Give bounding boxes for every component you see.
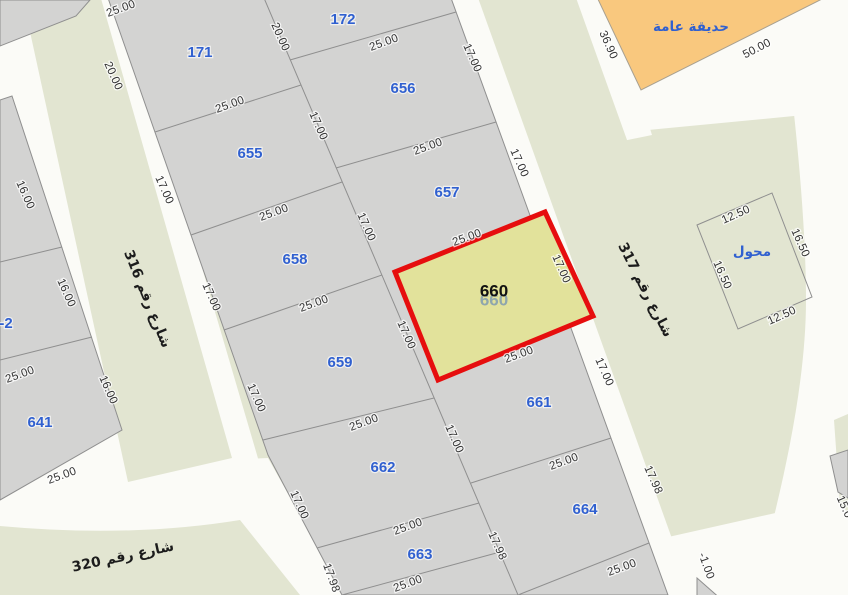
map-canvas[interactable]: 25.0020.0025.0017.0036.9050.0020.0025.00… xyxy=(0,0,848,595)
parcel-number: 664 xyxy=(572,501,598,518)
map-viewport: 25.0020.0025.0017.0036.9050.0020.0025.00… xyxy=(0,0,848,595)
parcel-number: 655 xyxy=(237,145,262,162)
parcel-number: 663 xyxy=(407,546,432,563)
public-garden-label: حديقة عامة xyxy=(653,19,729,35)
parcel-number: 172 xyxy=(330,11,355,28)
parcel-660-label: 660 xyxy=(480,281,508,300)
parcel-number: 658 xyxy=(282,251,307,268)
parcel-number: 657 xyxy=(434,184,459,201)
parcel-number: 659 xyxy=(327,354,352,371)
parcel-number: 641 xyxy=(27,414,52,431)
parcel-number: 662 xyxy=(370,459,395,476)
parcel-number: 656 xyxy=(390,80,415,97)
highlight-labels: 660660 xyxy=(480,281,508,309)
transformer-label: محول xyxy=(733,244,771,260)
parcel-number: -2 xyxy=(0,315,13,332)
parcel-number: 171 xyxy=(187,44,212,61)
parcel-number: 661 xyxy=(526,394,551,411)
